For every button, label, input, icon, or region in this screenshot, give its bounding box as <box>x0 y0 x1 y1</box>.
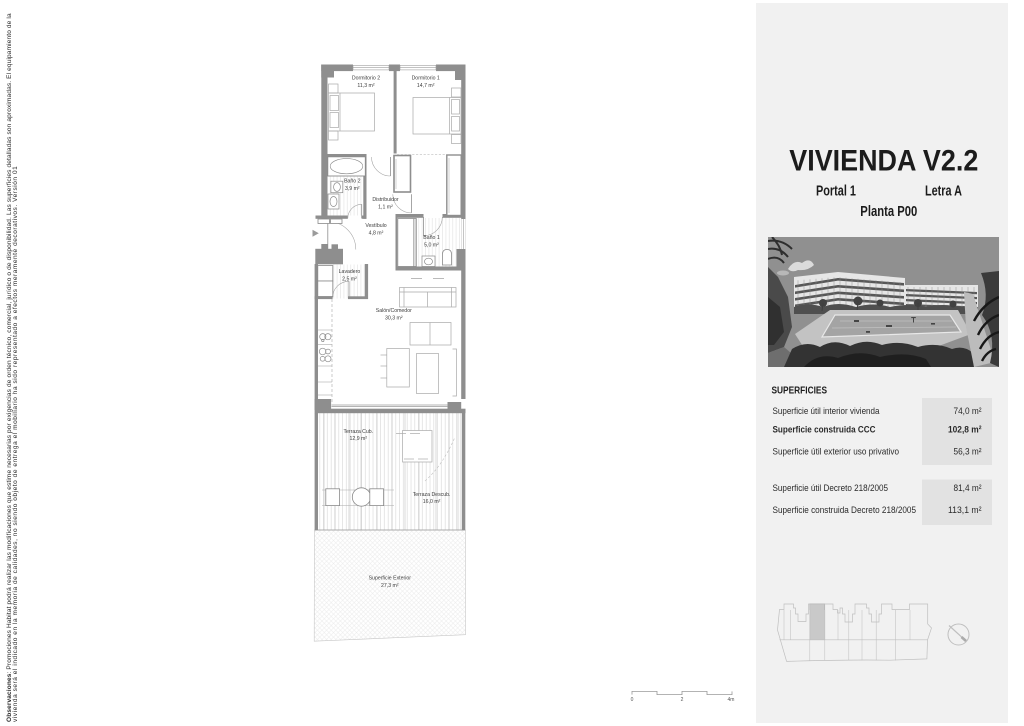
svg-text:Superficie construida CCC: Superficie construida CCC <box>773 424 876 435</box>
svg-text:74,0 m²: 74,0 m² <box>954 406 983 417</box>
svg-text:Superficie útil interior vivie: Superficie útil interior vivienda <box>773 406 881 417</box>
svg-text:Superficie construida Decreto: Superficie construida Decreto 218/2005 <box>773 505 917 516</box>
svg-text:102,8 m²: 102,8 m² <box>948 424 982 435</box>
svg-text:81,4 m²: 81,4 m² <box>954 483 983 494</box>
svg-text:Planta P00: Planta P00 <box>860 204 917 220</box>
svg-text:VIVIENDA V2.2: VIVIENDA V2.2 <box>789 145 978 178</box>
svg-text:Letra A: Letra A <box>925 184 962 200</box>
svg-text:56,3 m²: 56,3 m² <box>954 446 983 457</box>
svg-text:Portal 1: Portal 1 <box>816 184 856 200</box>
svg-text:Superficie útil exterior uso p: Superficie útil exterior uso privativo <box>773 446 900 457</box>
svg-text:SUPERFICIES: SUPERFICIES <box>772 385 828 397</box>
svg-text:Superficie útil Decreto 218/20: Superficie útil Decreto 218/2005 <box>773 483 889 494</box>
svg-text:113,1 m²: 113,1 m² <box>948 505 982 516</box>
